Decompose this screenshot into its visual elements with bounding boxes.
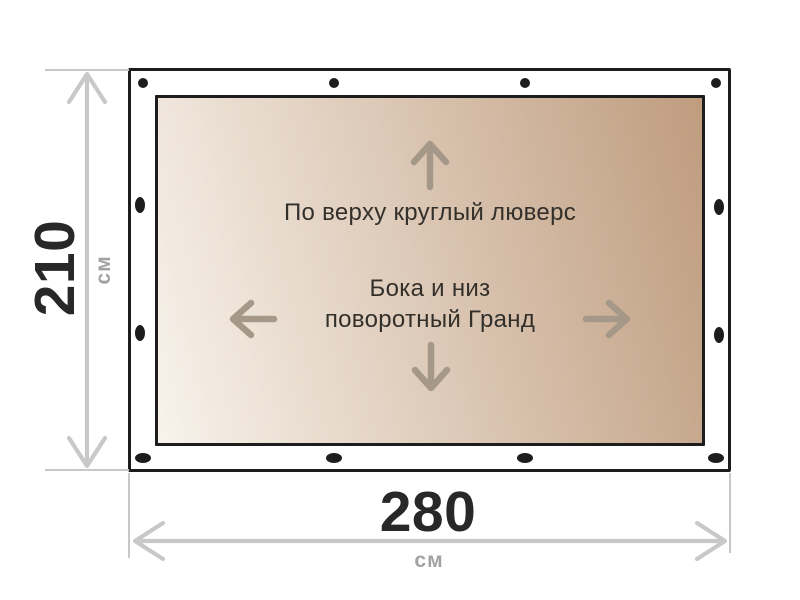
width-unit: см	[414, 549, 443, 573]
round-grommet-icon	[520, 78, 530, 88]
oval-fastener-icon	[714, 327, 724, 343]
oval-fastener-icon	[135, 325, 145, 341]
round-grommet-icon	[711, 78, 721, 88]
top-edge-annotation: По верху круглый люверс	[155, 199, 705, 227]
tarp-dimension-diagram: По верху круглый люверс Бока и низ повор…	[0, 0, 800, 600]
oval-fastener-icon	[708, 453, 724, 463]
down-arrow-icon	[411, 341, 451, 393]
up-arrow-icon	[410, 139, 450, 191]
height-value: 210	[22, 220, 88, 317]
sides-annotation-line2: поворотный Гранд	[155, 304, 705, 335]
oval-fastener-icon	[326, 453, 342, 463]
width-value: 280	[380, 479, 477, 545]
oval-fastener-icon	[135, 453, 151, 463]
round-grommet-icon	[138, 78, 148, 88]
oval-fastener-icon	[714, 199, 724, 215]
sides-annotation: Бока и низ поворотный Гранд	[155, 273, 705, 335]
height-unit: см	[92, 255, 116, 284]
round-grommet-icon	[329, 78, 339, 88]
sides-annotation-line1: Бока и низ	[155, 273, 705, 304]
oval-fastener-icon	[135, 197, 145, 213]
oval-fastener-icon	[517, 453, 533, 463]
top-edge-annotation-text: По верху круглый люверс	[284, 199, 576, 226]
